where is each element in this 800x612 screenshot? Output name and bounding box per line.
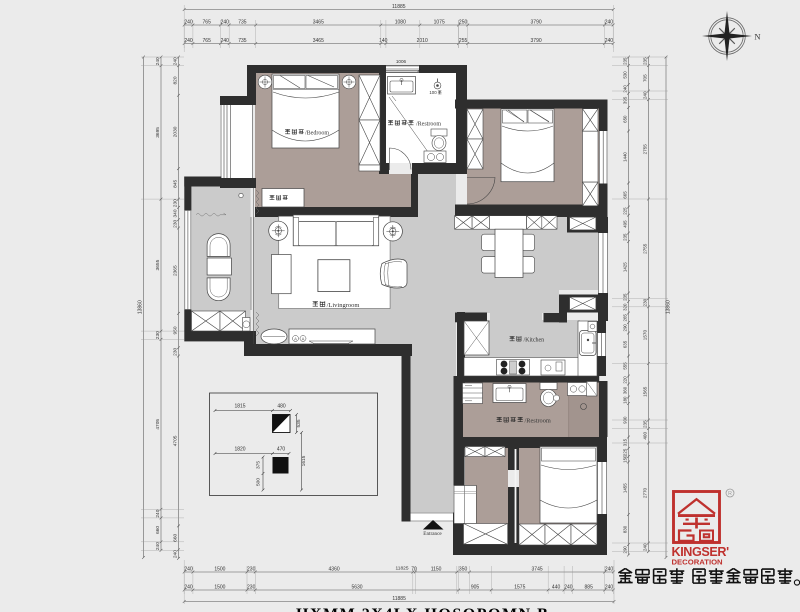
- svg-text:/Restroom: /Restroom: [416, 122, 441, 128]
- svg-text:235: 235: [623, 233, 628, 241]
- svg-text:395: 395: [623, 96, 628, 104]
- svg-text:250: 250: [459, 19, 468, 25]
- svg-text:240: 240: [564, 584, 573, 590]
- svg-text:/Livingroom: /Livingroom: [327, 302, 360, 309]
- svg-text:/Restroom: /Restroom: [525, 418, 551, 425]
- svg-text:1150: 1150: [431, 566, 442, 572]
- svg-text:240: 240: [184, 19, 193, 25]
- svg-text:HXMM 2X4LX HOSOPOMN B: HXMM 2X4LX HOSOPOMN B: [296, 606, 549, 612]
- svg-text:3465: 3465: [313, 19, 324, 25]
- svg-text:1006: 1006: [396, 59, 407, 64]
- svg-text:4360: 4360: [329, 566, 340, 572]
- svg-text:5630: 5630: [351, 584, 362, 590]
- svg-text:845: 845: [173, 179, 179, 187]
- svg-text:140: 140: [379, 38, 388, 44]
- svg-text:150: 150: [623, 455, 628, 463]
- svg-text:1565: 1565: [643, 386, 648, 397]
- svg-text:470: 470: [277, 447, 286, 453]
- svg-text:530: 530: [623, 71, 628, 79]
- svg-text:500: 500: [256, 478, 262, 486]
- svg-text:225: 225: [623, 207, 628, 215]
- svg-text:240: 240: [173, 57, 179, 65]
- svg-text:830: 830: [623, 525, 628, 533]
- svg-text:2030: 2030: [173, 126, 179, 137]
- svg-text:240: 240: [184, 38, 193, 44]
- svg-text:N: N: [754, 32, 760, 42]
- svg-text:240: 240: [643, 91, 648, 99]
- svg-text:235: 235: [623, 57, 628, 65]
- svg-text:R: R: [728, 491, 732, 497]
- svg-text:440: 440: [552, 584, 561, 590]
- svg-text:1080: 1080: [395, 19, 406, 25]
- svg-text:1075: 1075: [434, 19, 445, 25]
- svg-text:885: 885: [585, 584, 594, 590]
- svg-text:705: 705: [643, 74, 648, 82]
- svg-text:2755: 2755: [643, 243, 648, 254]
- svg-text:2010: 2010: [417, 38, 428, 44]
- svg-text:DECORATION: DECORATION: [672, 558, 724, 567]
- svg-text:290: 290: [623, 546, 628, 554]
- svg-text:735: 735: [238, 19, 247, 25]
- svg-text:1500: 1500: [214, 584, 225, 590]
- svg-text:1575: 1575: [514, 584, 525, 590]
- svg-text:765: 765: [203, 38, 212, 44]
- svg-text:1570: 1570: [643, 330, 648, 341]
- svg-text:11885: 11885: [392, 596, 406, 602]
- svg-text:535: 535: [296, 419, 302, 427]
- svg-text:290: 290: [623, 324, 628, 332]
- svg-text:1615: 1615: [301, 455, 307, 466]
- svg-text:3695: 3695: [155, 127, 161, 138]
- svg-text:180: 180: [623, 396, 628, 404]
- svg-text:265: 265: [623, 314, 628, 322]
- svg-text:905: 905: [471, 584, 480, 590]
- svg-text:3745: 3745: [532, 566, 543, 572]
- svg-text:230: 230: [643, 298, 648, 306]
- svg-text:660: 660: [155, 526, 161, 534]
- svg-text:765: 765: [203, 19, 212, 25]
- svg-text:230: 230: [155, 331, 161, 339]
- svg-text:A: A: [294, 336, 297, 341]
- svg-text:555: 555: [623, 362, 628, 370]
- svg-text:3790: 3790: [531, 19, 542, 25]
- svg-text:1425: 1425: [623, 262, 628, 272]
- svg-text:235: 235: [643, 420, 648, 428]
- svg-text:Entrance: Entrance: [423, 531, 442, 537]
- svg-text:240: 240: [155, 509, 161, 517]
- svg-text:/Kitchen: /Kitchen: [524, 338, 545, 344]
- svg-text:315: 315: [623, 438, 628, 446]
- svg-text:400: 400: [643, 432, 648, 440]
- svg-text:650: 650: [623, 115, 628, 123]
- svg-text:240: 240: [155, 542, 161, 550]
- svg-text:13860: 13860: [138, 300, 144, 314]
- svg-text:350: 350: [459, 566, 468, 572]
- svg-text:480: 480: [277, 404, 286, 410]
- svg-text:375: 375: [256, 461, 262, 469]
- svg-text:11825: 11825: [396, 566, 409, 572]
- svg-text:1440: 1440: [623, 152, 628, 162]
- svg-text:665: 665: [623, 191, 628, 199]
- svg-text:660: 660: [173, 533, 179, 541]
- svg-text:1500: 1500: [214, 566, 225, 572]
- svg-text:3655: 3655: [155, 259, 161, 270]
- svg-text:11885: 11885: [392, 4, 406, 10]
- svg-text:1455: 1455: [623, 483, 628, 493]
- svg-text:A: A: [302, 336, 305, 341]
- svg-text:1820: 1820: [234, 447, 245, 453]
- svg-text:240: 240: [643, 543, 648, 551]
- svg-text:2365: 2365: [173, 265, 179, 276]
- svg-text:240: 240: [605, 38, 614, 44]
- svg-text:3790: 3790: [531, 38, 542, 44]
- svg-text:495: 495: [623, 220, 628, 228]
- svg-text:240: 240: [221, 19, 230, 25]
- svg-text:230: 230: [173, 347, 179, 355]
- svg-text:2770: 2770: [643, 487, 648, 498]
- svg-text:950: 950: [173, 326, 179, 334]
- svg-text:2755: 2755: [643, 144, 648, 155]
- svg-text:240: 240: [605, 566, 614, 572]
- svg-text:340: 340: [173, 209, 179, 217]
- svg-text:240: 240: [184, 566, 193, 572]
- svg-text:230: 230: [247, 584, 256, 590]
- svg-text:255: 255: [459, 38, 468, 44]
- svg-text:230: 230: [247, 566, 256, 572]
- svg-text:235: 235: [643, 57, 648, 65]
- svg-text:100: 100: [429, 90, 437, 95]
- svg-text:/Bedroom: /Bedroom: [305, 131, 329, 137]
- svg-text:225: 225: [623, 448, 628, 456]
- svg-text:70: 70: [411, 566, 417, 572]
- svg-text:240: 240: [605, 19, 614, 25]
- svg-text:1815: 1815: [234, 404, 245, 410]
- svg-text:230: 230: [173, 219, 179, 227]
- svg-text:220: 220: [623, 376, 628, 384]
- svg-text:235: 235: [623, 293, 628, 301]
- svg-text:240: 240: [173, 550, 179, 558]
- svg-text:230: 230: [173, 199, 179, 207]
- svg-text:3465: 3465: [313, 38, 324, 44]
- svg-text:13860: 13860: [666, 300, 672, 314]
- svg-text:240: 240: [605, 584, 614, 590]
- svg-text:735: 735: [238, 38, 247, 44]
- svg-text:240: 240: [623, 85, 628, 93]
- svg-text:240: 240: [221, 38, 230, 44]
- svg-text:820: 820: [173, 76, 179, 84]
- svg-text:635: 635: [623, 340, 628, 348]
- svg-text:4705: 4705: [155, 419, 161, 430]
- svg-text:240: 240: [184, 584, 193, 590]
- svg-text:240: 240: [155, 57, 161, 65]
- svg-text:4705: 4705: [173, 435, 179, 446]
- svg-text:360: 360: [623, 386, 628, 394]
